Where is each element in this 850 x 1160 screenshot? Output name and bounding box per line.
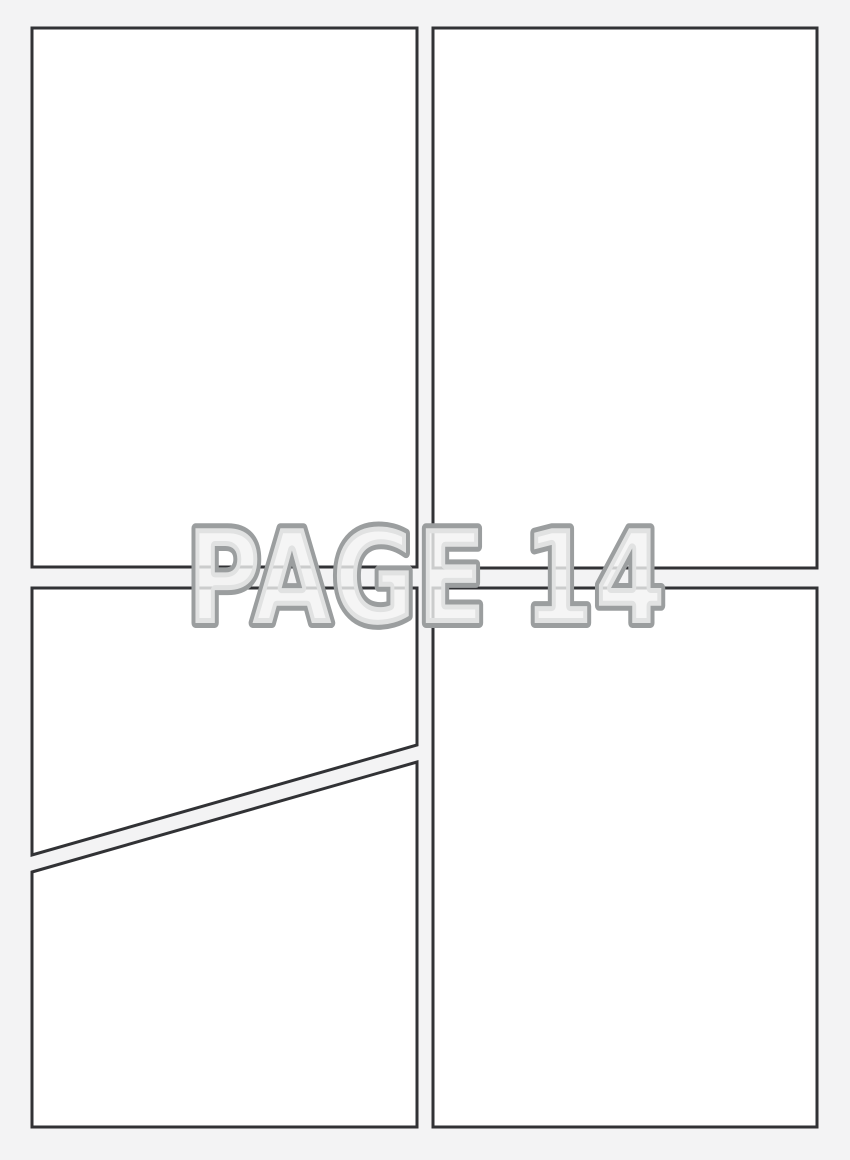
page-number-watermark: PAGE 14 — [186, 502, 666, 654]
panel-top-right — [433, 28, 817, 568]
comic-page-canvas: PAGE 14 — [0, 0, 850, 1160]
comic-page-template: PAGE 14 — [0, 0, 850, 1160]
panel-top-left — [32, 28, 417, 567]
panel-bottom-right — [433, 588, 817, 1127]
